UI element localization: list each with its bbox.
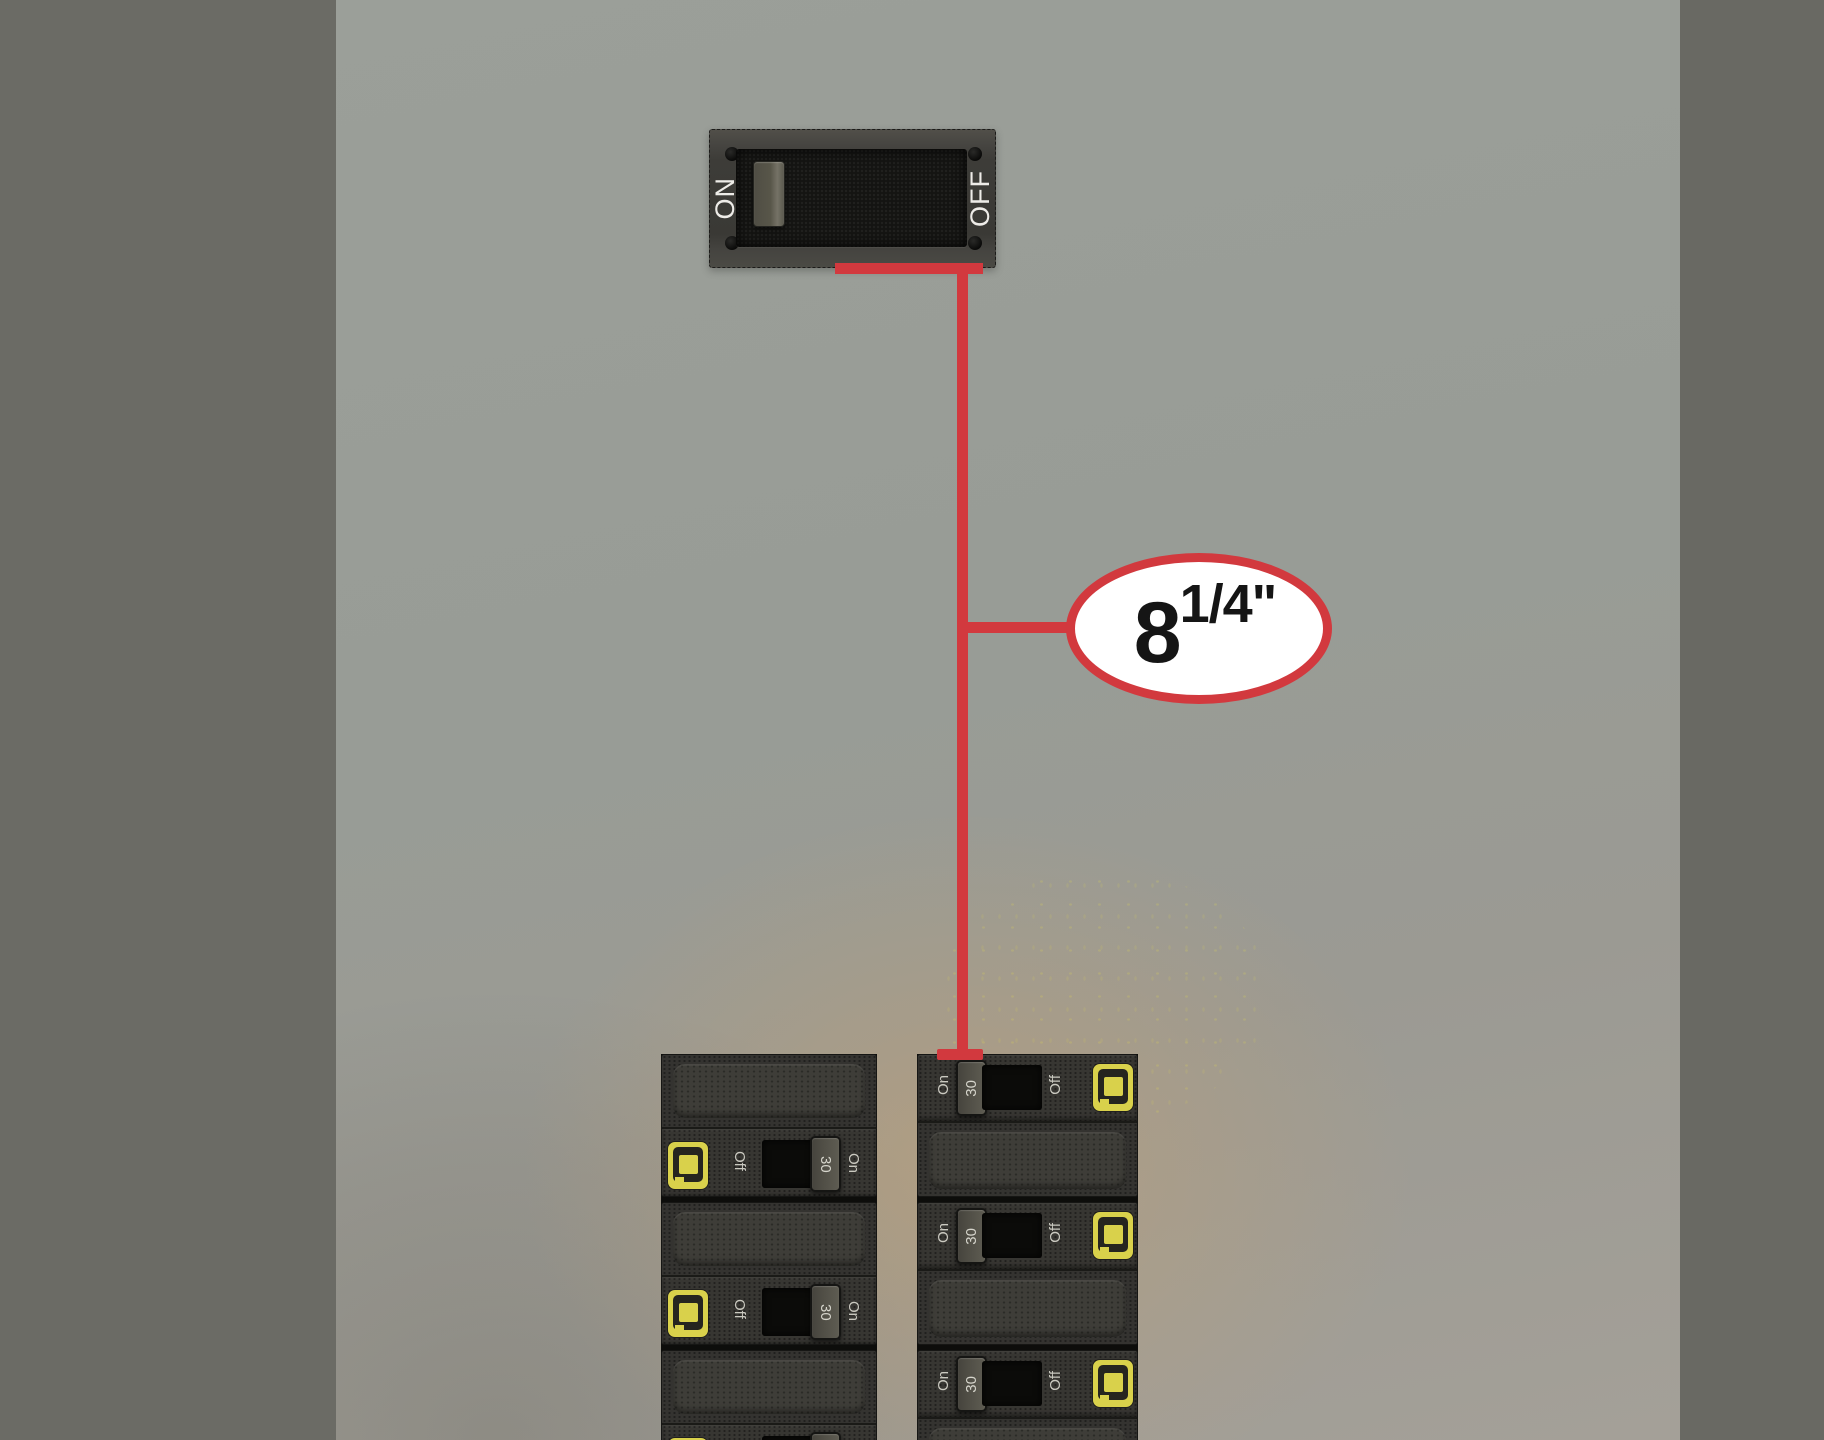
breaker-off-label: Off <box>1048 1371 1063 1391</box>
breaker-body-panel <box>662 1351 876 1425</box>
breaker-unit: Off 30 On <box>661 1202 877 1345</box>
main-breaker-switch: ON OFF <box>709 129 996 268</box>
breaker-controls: On 30 Off <box>918 1055 1137 1123</box>
breaker-body-panel <box>918 1123 1137 1197</box>
breaker-body-panel <box>918 1419 1137 1440</box>
measurement-line-end <box>937 1049 983 1060</box>
switch-recess <box>736 149 967 247</box>
square-d-logo-icon <box>668 1142 708 1189</box>
square-d-logo-icon <box>1093 1064 1133 1111</box>
callout-value: 81/4" <box>1134 577 1277 676</box>
breaker-unit: Off 30 On <box>661 1054 877 1197</box>
switch-handle <box>753 161 785 227</box>
square-d-logo-icon <box>1093 1360 1133 1407</box>
breaker-controls: Off 30 On <box>662 1129 876 1197</box>
breaker-column-left: Off 30 On Off 30 On Off 30 <box>661 1054 877 1440</box>
breaker-amp-label: 30 <box>964 1376 979 1393</box>
breaker-controls: Off 30 On <box>662 1425 876 1440</box>
breaker-off-label: Off <box>732 1151 747 1171</box>
callout-value-whole: 8 <box>1134 585 1180 681</box>
breaker-on-label: On <box>936 1371 951 1391</box>
breaker-amp-label: 30 <box>818 1156 833 1173</box>
breaker-amp-label: 30 <box>964 1080 979 1097</box>
right-dark-bar <box>1680 0 1824 1440</box>
square-d-logo-icon <box>1093 1212 1133 1259</box>
breaker-handle: 30 <box>810 1284 841 1340</box>
breaker-on-label: On <box>846 1153 861 1173</box>
breaker-handle: 30 <box>810 1136 841 1192</box>
callout-value-fraction: 1/4" <box>1180 574 1277 634</box>
breaker-unit: On 30 Off <box>917 1350 1138 1440</box>
switch-on-label-box: ON <box>711 130 739 267</box>
breaker-switch-recess <box>982 1213 1042 1258</box>
breaker-off-label: Off <box>732 1299 747 1319</box>
breaker-off-label: Off <box>1048 1223 1063 1243</box>
breaker-on-label: On <box>846 1301 861 1321</box>
breaker-body-panel <box>918 1271 1137 1345</box>
breaker-on-label: On <box>936 1223 951 1243</box>
breaker-switch-recess <box>982 1361 1042 1406</box>
measurement-callout-connector <box>962 622 1078 633</box>
breaker-controls: On 30 Off <box>918 1351 1137 1419</box>
breaker-body-panel <box>662 1055 876 1129</box>
breaker-amp-label: 30 <box>818 1304 833 1321</box>
breaker-unit: Off 30 On <box>661 1350 877 1440</box>
breaker-switch-recess <box>982 1065 1042 1110</box>
breaker-handle: 30 <box>810 1432 841 1440</box>
measurement-line-vertical <box>957 270 968 1053</box>
switch-off-label: OFF <box>967 170 994 227</box>
switch-off-label-box: OFF <box>966 130 994 267</box>
square-d-logo-icon <box>668 1290 708 1337</box>
breaker-unit: On 30 Off <box>917 1054 1138 1197</box>
breaker-unit: On 30 Off <box>917 1202 1138 1345</box>
breaker-column-right: On 30 Off On 30 Off On 30 O <box>917 1054 1138 1440</box>
breaker-controls: On 30 Off <box>918 1203 1137 1271</box>
left-dark-bar <box>0 0 336 1440</box>
panel-photo: ON OFF 81/4" Off 30 On <box>0 0 1824 1440</box>
breaker-off-label: Off <box>1048 1075 1063 1095</box>
switch-on-label: ON <box>712 177 739 220</box>
measurement-callout-bubble: 81/4" <box>1066 553 1332 704</box>
breaker-amp-label: 30 <box>964 1228 979 1245</box>
breaker-on-label: On <box>936 1075 951 1095</box>
breaker-controls: Off 30 On <box>662 1277 876 1345</box>
breaker-body-panel <box>662 1203 876 1277</box>
